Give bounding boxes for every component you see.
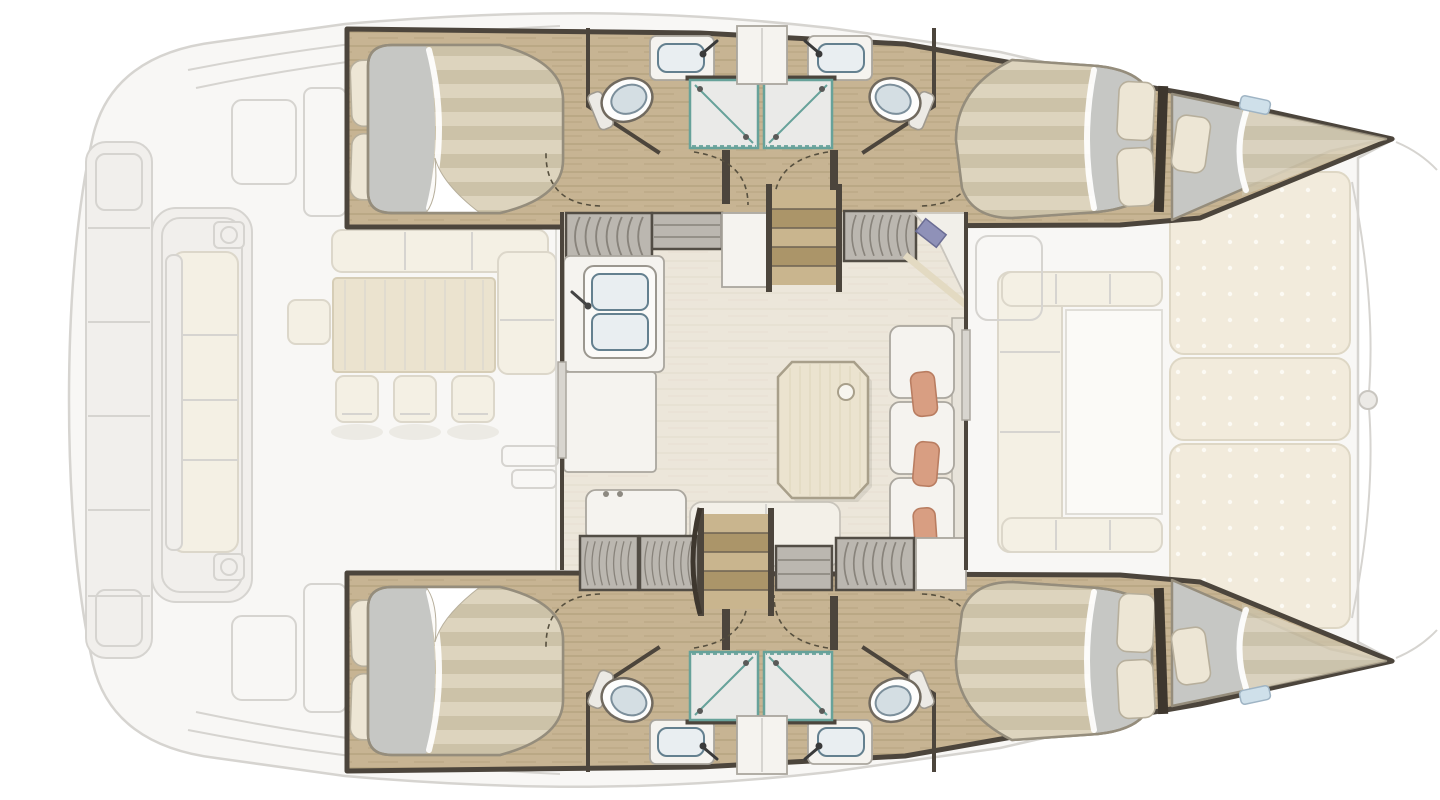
cup-recess bbox=[838, 384, 854, 400]
transom-platform bbox=[86, 142, 152, 658]
forward-cabin bbox=[956, 60, 1168, 218]
appliance-unit bbox=[586, 490, 686, 542]
salmon-pillow bbox=[910, 371, 938, 417]
aft-cockpit-bench bbox=[152, 208, 252, 602]
catamaran-floor-plan bbox=[0, 0, 1440, 800]
cockpit-chair bbox=[447, 376, 499, 440]
cabin-door bbox=[722, 150, 730, 204]
forward-door bbox=[962, 330, 970, 420]
salmon-pillow bbox=[912, 441, 940, 487]
cockpit-chair bbox=[331, 376, 383, 440]
aft-cabin bbox=[350, 45, 563, 213]
pillow bbox=[1170, 114, 1211, 174]
shelf-locker bbox=[652, 213, 722, 249]
galley-sink bbox=[592, 274, 648, 310]
cockpit-table bbox=[333, 278, 495, 372]
forward-cockpit-bench-top bbox=[1002, 272, 1162, 306]
starboard-hull bbox=[347, 26, 1392, 227]
shelf-locker bbox=[776, 546, 832, 590]
galley bbox=[564, 256, 664, 472]
bench-backrest bbox=[166, 255, 182, 550]
crossbeam-fitting bbox=[1359, 391, 1377, 409]
cockpit-chair-left bbox=[288, 300, 330, 344]
stairs-starboard bbox=[766, 184, 842, 292]
cockpit-chair bbox=[389, 376, 441, 440]
pillow bbox=[1117, 81, 1156, 141]
port-hull bbox=[347, 573, 1392, 774]
galley-sink bbox=[592, 314, 648, 350]
cockpit-l-bench-side bbox=[498, 252, 556, 374]
saloon-sofa bbox=[890, 318, 966, 568]
saloon bbox=[558, 184, 970, 616]
pillow bbox=[1117, 147, 1156, 207]
galley-cabinet bbox=[722, 213, 768, 287]
floor-plan-svg bbox=[0, 0, 1440, 800]
washbasin bbox=[658, 44, 704, 72]
corner-cabinet bbox=[916, 538, 966, 590]
forward-cockpit-floor bbox=[1066, 310, 1162, 514]
forward-cockpit bbox=[998, 272, 1162, 552]
forward-cockpit-bench-left bbox=[998, 272, 1062, 552]
saloon-table bbox=[778, 362, 872, 502]
sliding-door-aft bbox=[558, 362, 566, 458]
stairs-port bbox=[693, 508, 774, 616]
shower-cabin bbox=[688, 78, 758, 148]
forward-cockpit-bench-bottom bbox=[1002, 518, 1162, 552]
bow-rigging bbox=[1352, 142, 1437, 658]
foredeck-sunpads bbox=[1170, 172, 1350, 628]
galley-lower-cabinet bbox=[564, 372, 656, 472]
